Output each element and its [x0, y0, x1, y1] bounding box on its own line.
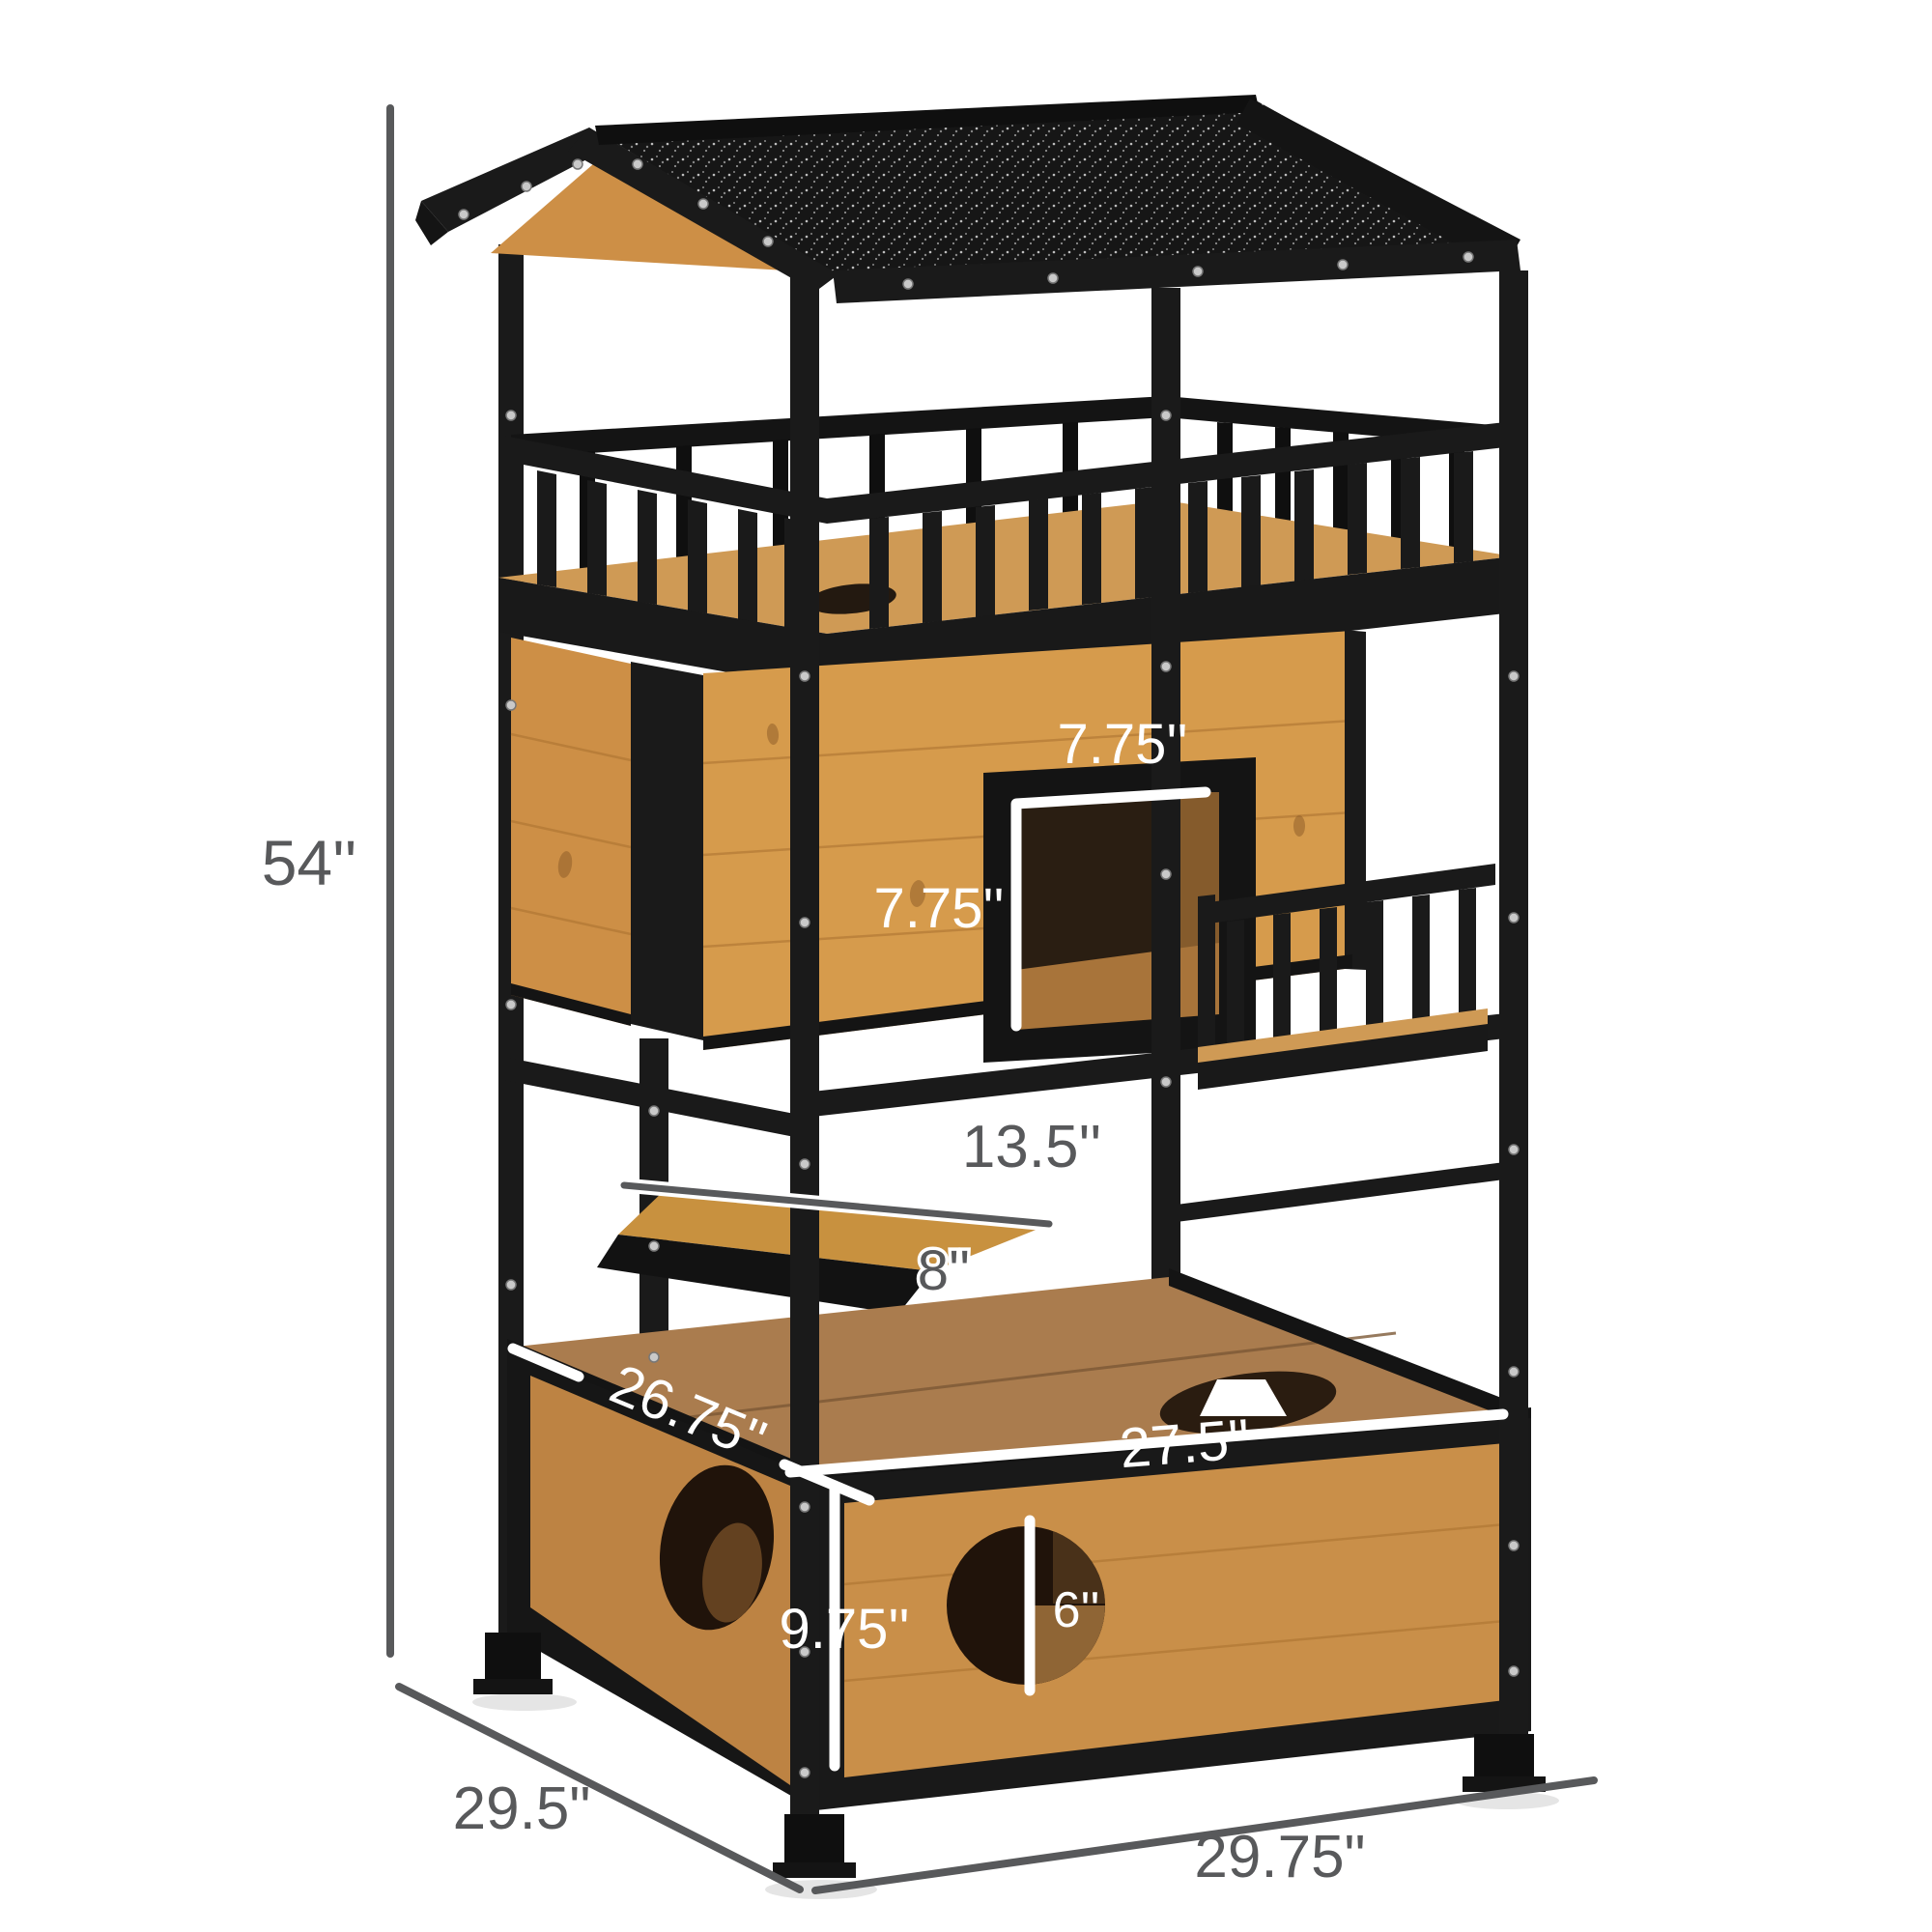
dim-base-width-label: 29.75" — [1194, 1824, 1365, 1890]
dim-base-depth-label: 29.5" — [453, 1776, 591, 1842]
right-post — [1499, 270, 1528, 1734]
porch-lower-rail — [1169, 1161, 1512, 1223]
cabin-left-wall — [511, 638, 631, 1026]
shelter-box — [507, 1268, 1531, 1810]
foot-rear-left — [485, 1633, 541, 1687]
dim-overall-height-label: 54'' — [262, 827, 357, 898]
dim-perch-depth-label: 8'' — [918, 1239, 970, 1302]
dim-box-top-width-label: 27.5'' — [1118, 1407, 1253, 1480]
cat-house-illustration: 54'' 29.5" 29.75" 7.75'' 7.75'' 13.5'' 8… — [0, 0, 1932, 1932]
product-dimension-diagram: 54'' 29.5" 29.75" 7.75'' 7.75'' 13.5'' 8… — [0, 0, 1932, 1932]
dim-perch-length-label: 13.5'' — [962, 1114, 1101, 1180]
dim-door-width-label: 7.75'' — [1057, 713, 1187, 776]
foot-front — [784, 1814, 844, 1870]
dim-hole-diameter-label: 6'' — [1053, 1582, 1100, 1638]
front-left-post — [790, 263, 819, 1814]
roof — [415, 95, 1520, 303]
dim-box-height-label: 9.75'' — [779, 1598, 909, 1661]
dim-door-height-label: 7.75'' — [873, 877, 1004, 940]
cabin-right-corner-trim — [1345, 630, 1366, 970]
cabin-corner-post — [631, 662, 703, 1040]
